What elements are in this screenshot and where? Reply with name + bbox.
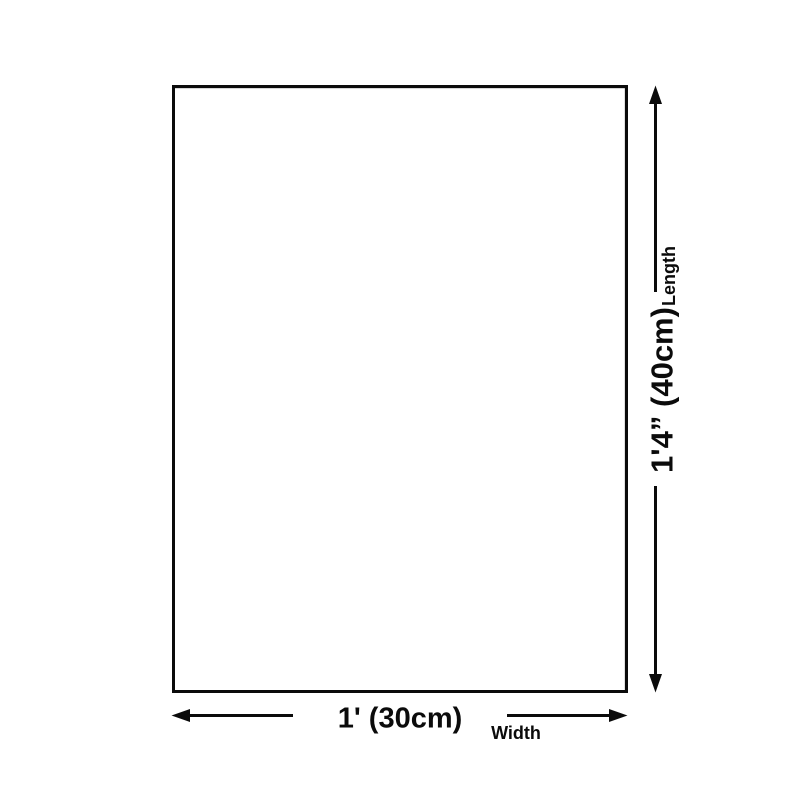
width-axis-label: Width	[491, 724, 541, 742]
arrow-down-head-icon	[649, 674, 662, 693]
product-size-diagram: 1' (30cm) Width 1'4” (40cm) Length	[0, 0, 800, 800]
width-dimension-value: 1' (30cm)	[338, 705, 463, 734]
arrow-right-head-icon	[609, 709, 628, 722]
length-axis-label: Length	[660, 246, 678, 306]
dimension-arrows	[0, 0, 800, 800]
length-dimension-value: 1'4” (40cm)	[647, 307, 678, 473]
